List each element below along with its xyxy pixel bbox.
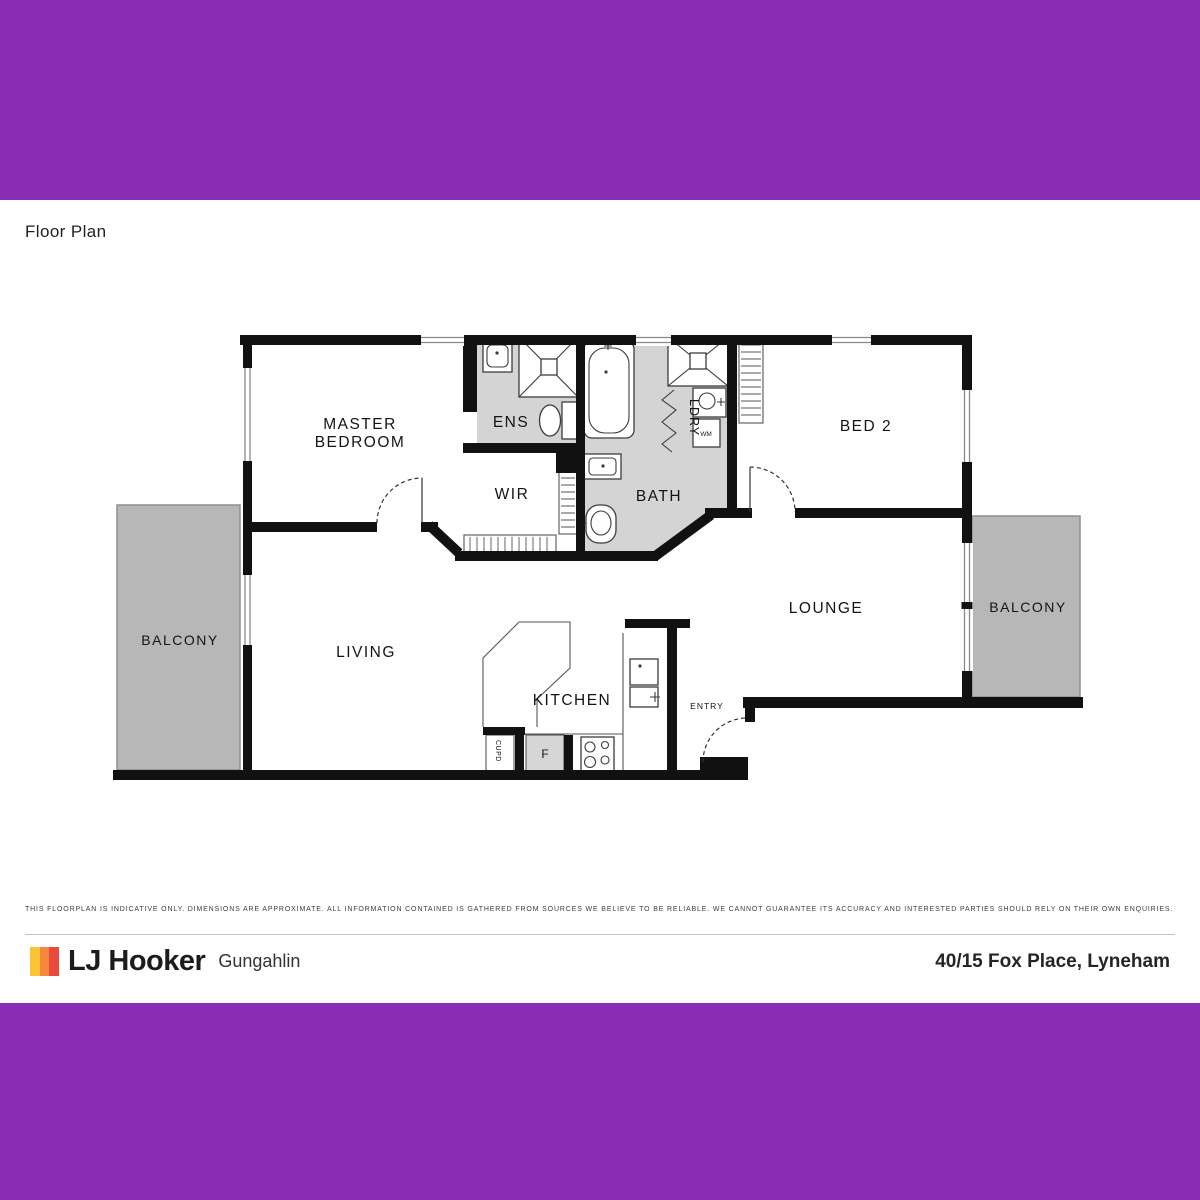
label-entry: ENTRY [690,701,724,711]
label-master-line1: MASTER [323,416,397,433]
bath-vanity [584,454,621,479]
label-master-line2: BEDROOM [315,434,406,451]
label-balcony-left: BALCONY [141,632,218,648]
entry-door-arc [703,718,747,762]
stove [581,737,614,771]
label-bed2: BED 2 [840,418,892,435]
bed2-door-arc [750,467,795,512]
office-name: Gungahlin [218,951,300,972]
label-ens: ENS [493,414,529,431]
kitchen-sink [630,659,660,707]
master-door-arc [377,478,422,523]
bed2-robe [739,338,763,423]
label-lounge: LOUNGE [789,600,863,617]
wir-robe-right [559,472,577,534]
wir-robe-bottom [464,535,556,553]
label-balcony-right: BALCONY [989,599,1066,615]
bathtub [584,341,634,438]
label-ldry: LDRY [687,399,701,436]
label-wm: WM [700,431,712,438]
label-kitchen: KITCHEN [533,692,612,709]
living-balcony-slider [242,575,253,645]
lj-hooker-logo-icon [30,947,59,976]
brand-name: LJ Hooker [68,945,205,978]
label-bath: BATH [636,488,682,505]
property-address: 40/15 Fox Place, Lyneham [935,951,1170,973]
ens-shower [519,337,578,397]
label-fridge: F [541,747,548,761]
floor-plan-drawing: MASTER BEDROOM ENS WIR BATH BED 2 LDRY W… [0,0,1200,1200]
label-wir: WIR [495,486,530,503]
disclaimer-text: THIS FLOORPLAN IS INDICATIVE ONLY. DIMEN… [25,906,1175,913]
footer-divider [25,934,1175,935]
label-cupd: CUPD [494,740,501,762]
agency-logo-row: LJ Hooker Gungahlin [30,945,300,977]
label-living: LIVING [336,644,396,661]
